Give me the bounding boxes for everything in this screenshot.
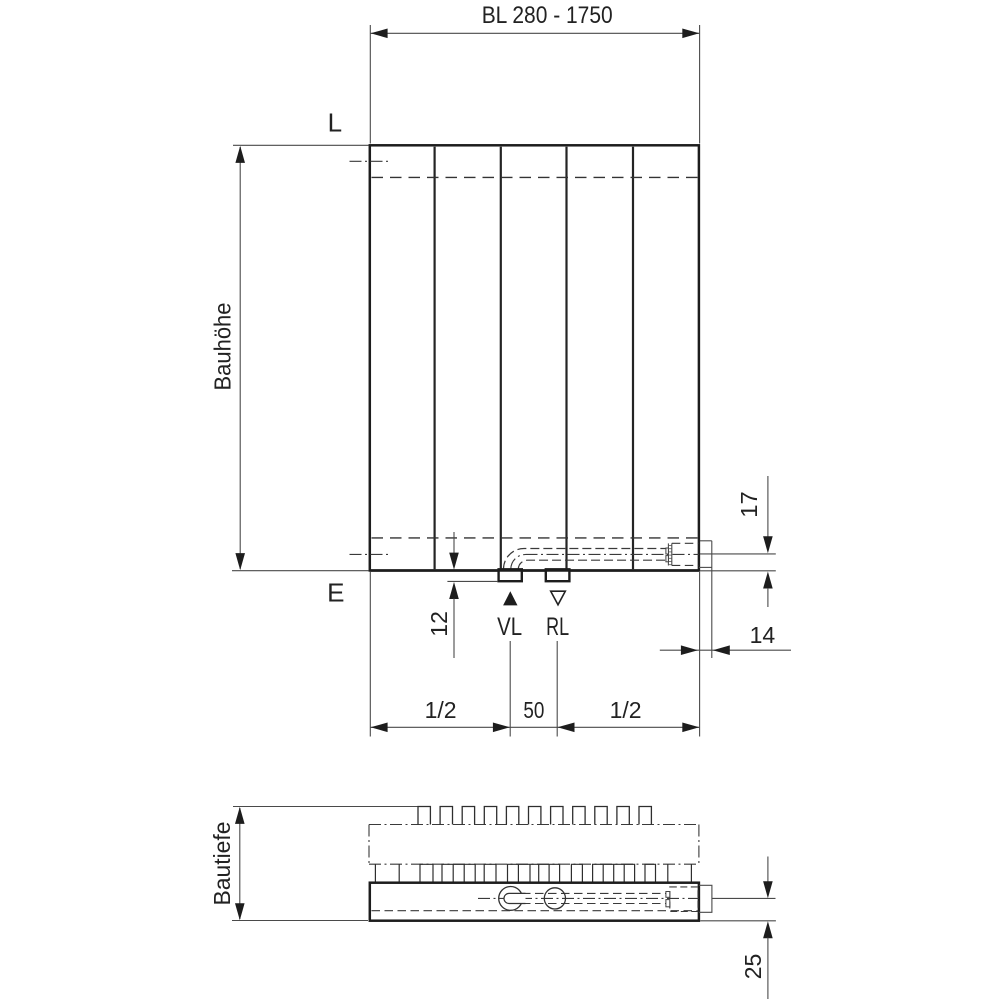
- svg-text:VL: VL: [497, 613, 522, 641]
- svg-text:1/2: 1/2: [425, 697, 457, 723]
- svg-text:BL 280 - 1750: BL 280 - 1750: [482, 2, 613, 29]
- svg-text:Bautiefe: Bautiefe: [209, 822, 235, 906]
- svg-text:RL: RL: [546, 613, 569, 641]
- svg-text:17: 17: [736, 491, 762, 518]
- svg-text:E: E: [327, 578, 344, 608]
- svg-text:50: 50: [523, 697, 544, 723]
- svg-text:25: 25: [740, 954, 766, 980]
- svg-text:1/2: 1/2: [610, 697, 642, 723]
- svg-text:L: L: [328, 108, 342, 138]
- svg-text:Bauhöhe: Bauhöhe: [209, 303, 235, 391]
- svg-text:12: 12: [426, 611, 452, 637]
- svg-text:14: 14: [750, 622, 776, 648]
